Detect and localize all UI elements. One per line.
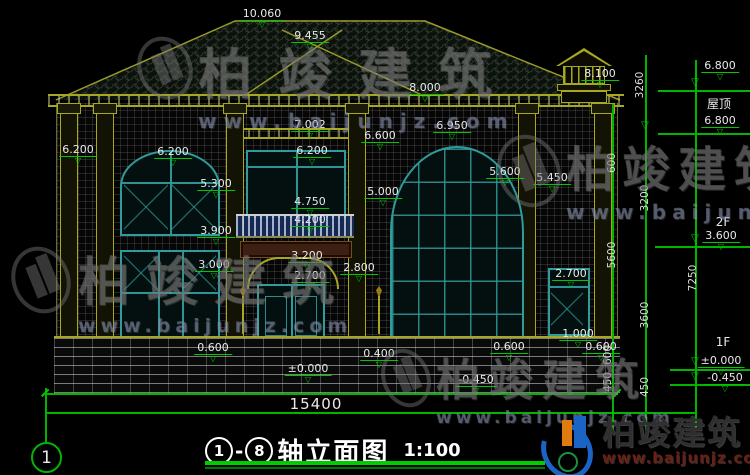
title-dash: - [235,439,243,463]
baijun-logo: 柏竣建筑 www.baijunjz.com [540,416,750,474]
level-marker: ▽ [641,120,649,131]
dim-label: 2.700▽ [552,268,590,288]
title-scale: 1:100 [403,440,460,461]
dim-label: -0.450▽ [455,374,496,394]
dim-label: 3200 [640,185,652,212]
dim-label: 1F [716,336,731,349]
dim-label: ±0.000▽ [285,363,332,383]
dim-label: 4.200▽ [291,214,329,234]
dim-label: 3.600▽ [702,230,740,250]
dim-label: 3.900▽ [197,225,235,245]
level-marker: ▽ [691,371,699,382]
dim-label: 7.002▽ [291,119,329,139]
dim-label: 2.800▽ [340,262,378,282]
dim-label: 5600 [607,242,619,269]
annotations-layer: 10.060▽9.455▽8.000▽8.100▽7.002▽6.950▽6.6… [0,0,750,475]
dim-label: 6.950▽ [433,120,471,140]
dim-label: -0.450▽ [704,372,745,392]
dim-label: 3260 [635,72,647,99]
baijun-logo-icon [540,416,602,474]
dim-label: 3.000▽ [195,259,233,279]
title-underline [205,461,545,465]
dim-label: 6.200▽ [154,146,192,166]
dim-label: 8.100▽ [581,68,619,88]
dim-label: 6.800▽ [701,115,739,135]
dim-label: 0.600▽ [194,342,232,362]
dim-label: 6.200▽ [59,144,97,164]
dim-label: 3.200▽ [288,250,326,270]
dim-label: 15400 [290,396,343,413]
title-underline [205,467,545,469]
dim-label: 2.700▽ [291,270,329,290]
dim-label: 3600 [640,302,652,329]
dim-label: 6.600▽ [361,130,399,150]
dim-label: 2F [716,216,731,229]
dim-label: 0.400▽ [360,348,398,368]
dim-label: 450 [640,377,652,397]
dim-label: 0.600▽ [490,341,528,361]
dim-label: 600 [603,345,615,365]
cad-canvas: 10.060▽9.455▽8.000▽8.100▽7.002▽6.950▽6.6… [0,0,750,475]
level-marker: ▽ [691,356,699,367]
axis-grid-bubble: 1 [31,442,62,473]
dim-label: 6.800▽ [701,60,739,80]
dim-label: 9.455▽ [291,30,329,50]
logo-url-text: www.baijunjz.com [602,449,750,467]
dim-label: 450 [603,372,615,392]
dim-label: 5.300▽ [197,178,235,198]
dim-label: 屋顶 [707,98,731,111]
dim-label: 8.000▽ [406,82,444,102]
dim-label: 5.000▽ [364,186,402,206]
level-marker: ▽ [691,77,699,88]
level-marker: ▽ [691,233,699,244]
dim-label: 5.450▽ [533,172,571,192]
dim-label: 600 [607,153,619,173]
dim-label: 5.600▽ [486,166,524,186]
dim-label: 10.060▽ [240,8,285,28]
dim-label: 6.200▽ [293,145,331,165]
dim-label: 7250 [688,265,700,292]
logo-brand-text: 柏竣建筑 [602,416,750,449]
